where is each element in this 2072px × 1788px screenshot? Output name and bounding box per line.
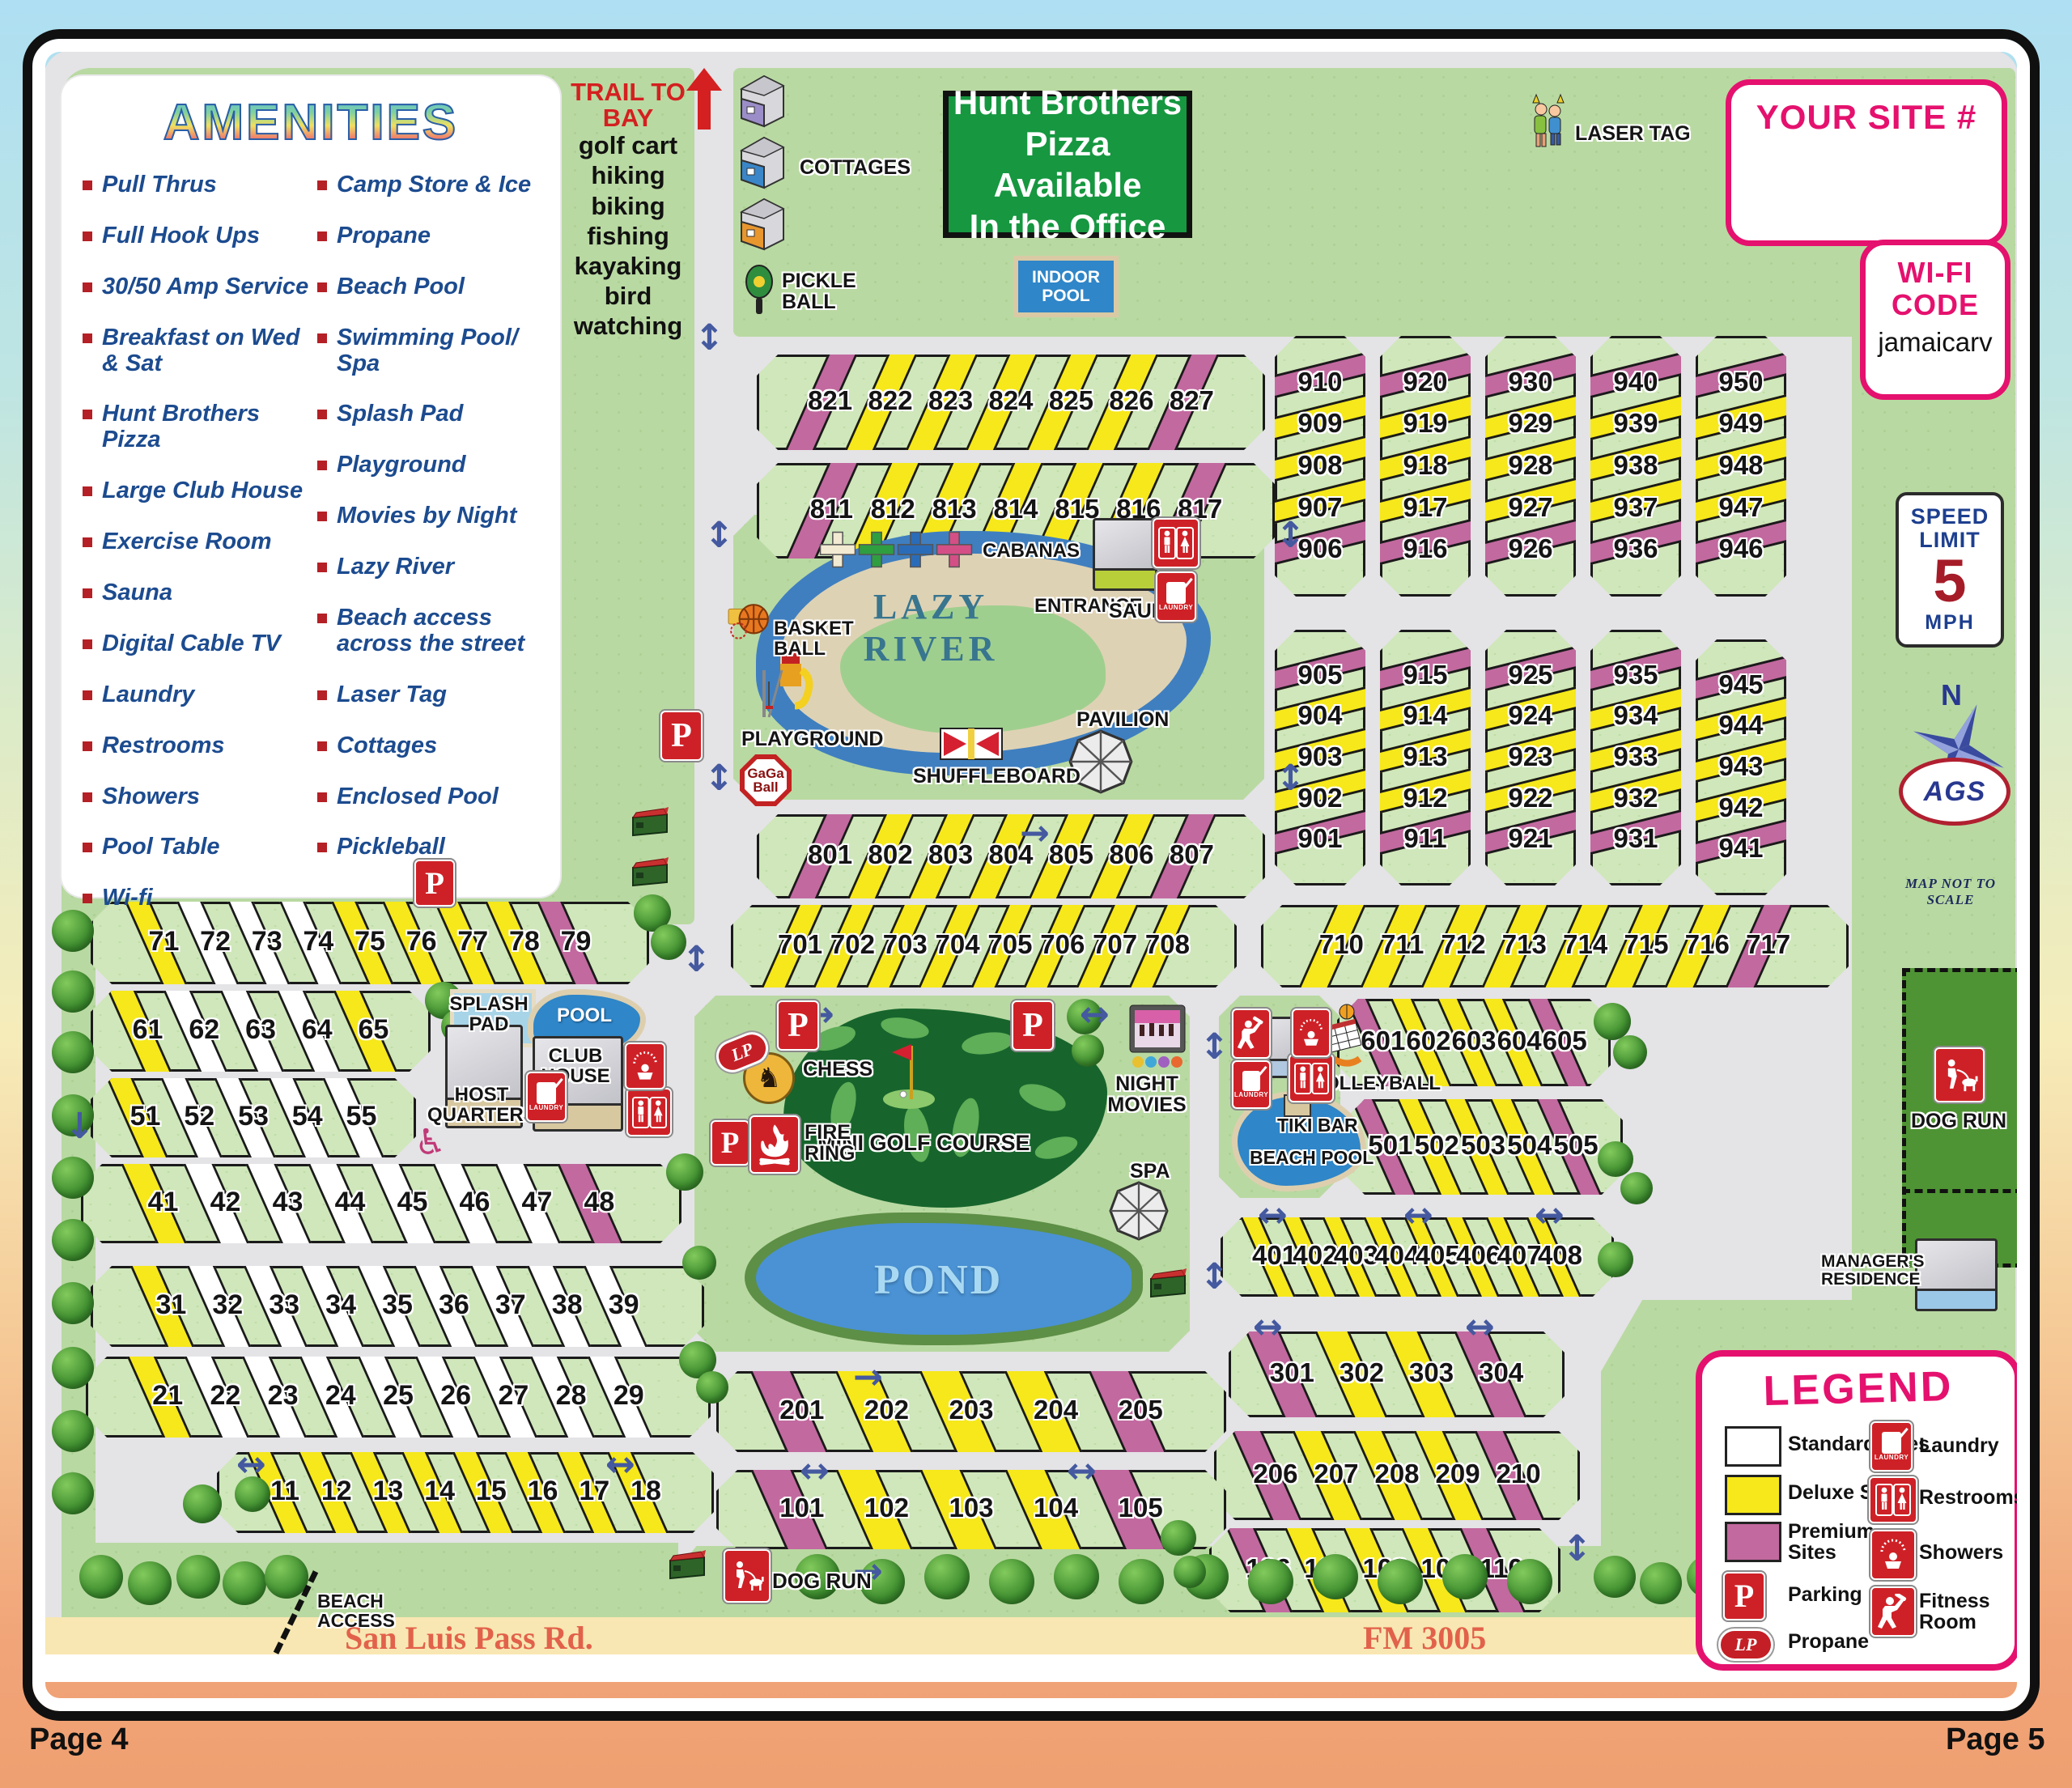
fire-ring-label: FIRE RING bbox=[805, 1122, 856, 1165]
col-935: 935934933932931 bbox=[1590, 630, 1681, 886]
legend-box: LEGEND Standard Sites Deluxe Sites Premi… bbox=[1696, 1350, 2021, 1671]
amenity-item: Cottages bbox=[317, 733, 552, 759]
map-not-to-scale-label: MAP NOT TO SCALE bbox=[1886, 876, 2015, 908]
legend-title: LEGEND bbox=[1701, 1361, 2015, 1417]
dog-sign-icon bbox=[724, 1549, 771, 1603]
amenity-item: Restrooms bbox=[83, 733, 317, 759]
chess-label: CHESS bbox=[803, 1059, 873, 1080]
site-number-825: 825 bbox=[1040, 385, 1102, 416]
pavilion-label: PAVILION bbox=[1076, 709, 1169, 730]
tree-icon bbox=[1378, 1559, 1423, 1604]
site-number-712: 712 bbox=[1433, 929, 1494, 960]
site-number-801: 801 bbox=[800, 839, 861, 870]
legend-propane-icon: LP bbox=[1718, 1629, 1773, 1661]
tree-icon bbox=[1119, 1559, 1164, 1604]
traffic-arrow: ↔ bbox=[605, 1444, 635, 1485]
site-number-913: 913 bbox=[1395, 741, 1456, 772]
site-number-207: 207 bbox=[1306, 1459, 1367, 1489]
trail-activity: golf cart bbox=[565, 130, 691, 160]
restroom-sign-icon bbox=[1289, 1054, 1334, 1102]
row-700s-a: 701702703704705706707708 bbox=[731, 905, 1237, 987]
indoor-pool-text: INDOOR POOL bbox=[1032, 268, 1100, 305]
dumpster-icon bbox=[1149, 1268, 1187, 1300]
site-number-914: 914 bbox=[1395, 700, 1456, 731]
site-number-42: 42 bbox=[195, 1187, 257, 1218]
traffic-arrow: ↕ bbox=[704, 758, 734, 799]
amenity-item: Camp Store & Ice bbox=[317, 172, 552, 198]
site-number-201: 201 bbox=[771, 1395, 833, 1425]
tree-icon bbox=[1507, 1559, 1552, 1604]
site-number-301: 301 bbox=[1261, 1357, 1323, 1388]
golf-flag-icon bbox=[881, 1038, 937, 1111]
site-number-942: 942 bbox=[1710, 792, 1772, 823]
legend-restrooms-icon bbox=[1869, 1476, 1917, 1523]
traffic-arrow: ↕ bbox=[704, 515, 734, 556]
speed-limit-sign: SPEED LIMIT 5 MPH bbox=[1896, 492, 2004, 648]
amenity-item: Breakfast on Wed & Sat bbox=[83, 325, 317, 377]
amenity-item: Enclosed Pool bbox=[317, 784, 552, 810]
cabana-icon bbox=[897, 531, 934, 572]
legend-fitness-icon bbox=[1870, 1586, 1916, 1637]
wifi-code-title: WI-FI CODE bbox=[1866, 257, 2005, 321]
tree-icon bbox=[1594, 1003, 1631, 1040]
fitness-sign-icon bbox=[1232, 1009, 1271, 1059]
legend-parking-icon: P bbox=[1723, 1572, 1765, 1620]
speed-limit-text: SPEED LIMIT bbox=[1911, 505, 1989, 551]
site-number-28: 28 bbox=[541, 1380, 602, 1412]
site-number-23: 23 bbox=[253, 1380, 314, 1412]
traffic-arrow: ↔ bbox=[1067, 1450, 1097, 1492]
amenity-item: Wi-fi bbox=[83, 886, 317, 911]
tree-icon bbox=[52, 1031, 94, 1073]
sauna-building bbox=[1093, 518, 1157, 591]
cabana-icon bbox=[819, 531, 856, 572]
cabanas-label: CABANAS bbox=[983, 541, 1080, 561]
row-500s: 501502503504505 bbox=[1344, 1099, 1623, 1195]
tree-icon bbox=[682, 1246, 716, 1280]
traffic-arrow: ↕ bbox=[1199, 1256, 1229, 1297]
site-number-47: 47 bbox=[506, 1187, 567, 1218]
legend-showers-icon bbox=[1870, 1530, 1916, 1580]
managers-residence-building bbox=[1915, 1238, 1998, 1311]
site-number-64: 64 bbox=[287, 1014, 348, 1046]
site-number-912: 912 bbox=[1395, 783, 1456, 813]
amenities-card: AMENITIES Pull ThrusFull Hook Ups30/50 A… bbox=[62, 76, 560, 897]
site-number-103: 103 bbox=[940, 1493, 1002, 1523]
site-number-716: 716 bbox=[1676, 929, 1738, 960]
amenity-item: Exercise Room bbox=[83, 529, 317, 555]
row-200s-a: 201202203204205 bbox=[716, 1371, 1226, 1452]
amenity-item: Digital Cable TV bbox=[83, 631, 317, 657]
shower-sign-icon bbox=[625, 1043, 665, 1089]
site-number-55: 55 bbox=[330, 1101, 392, 1132]
tree-icon bbox=[52, 1410, 94, 1452]
tree-icon bbox=[1640, 1562, 1682, 1604]
site-number-927: 927 bbox=[1500, 492, 1561, 523]
laser-tag-icon bbox=[1525, 91, 1572, 151]
legend-premium-label: Premium Sites bbox=[1788, 1522, 1875, 1563]
traffic-arrow: ↕ bbox=[694, 317, 724, 359]
shower-sign-icon bbox=[1292, 1009, 1331, 1057]
site-number-909: 909 bbox=[1289, 408, 1351, 439]
legend-propane-label: Propane bbox=[1788, 1632, 1869, 1653]
san-luis-pass-rd-label: San Luis Pass Rd. bbox=[345, 1619, 593, 1657]
shuffleboard-icon bbox=[939, 727, 1004, 761]
tiki-bar-label: TIKI BAR bbox=[1277, 1115, 1358, 1135]
traffic-arrow: ↕ bbox=[1276, 758, 1306, 799]
row-800s: 801802803804805806807 bbox=[757, 814, 1265, 898]
pond-label: POND bbox=[874, 1256, 1003, 1304]
site-number-202: 202 bbox=[856, 1395, 917, 1425]
site-number-918: 918 bbox=[1395, 450, 1456, 481]
legend-fitness-label: Fitness Room bbox=[1919, 1591, 1990, 1633]
tree-icon bbox=[666, 1153, 703, 1191]
shuffleboard-label: SHUFFLEBOARD bbox=[913, 766, 1081, 787]
compass-north-label: N bbox=[1941, 678, 1962, 712]
traffic-arrow: ↓ bbox=[65, 1106, 95, 1147]
site-number-935: 935 bbox=[1605, 660, 1667, 690]
legend-premium-swatch bbox=[1725, 1522, 1781, 1562]
row-20s: 212223242526272829 bbox=[86, 1357, 711, 1438]
amenity-item: Beach Pool bbox=[317, 274, 552, 300]
amenity-item: Swimming Pool/ Spa bbox=[317, 325, 552, 377]
site-number-921: 921 bbox=[1500, 823, 1561, 854]
site-number-944: 944 bbox=[1710, 710, 1772, 741]
site-number-904: 904 bbox=[1289, 700, 1351, 731]
tree-icon bbox=[52, 1157, 94, 1199]
site-number-203: 203 bbox=[940, 1395, 1002, 1425]
site-number-937: 937 bbox=[1605, 492, 1667, 523]
site-number-79: 79 bbox=[546, 926, 607, 958]
amenities-column-2: Camp Store & IcePropaneBeach PoolSwimmin… bbox=[317, 172, 552, 911]
site-number-209: 209 bbox=[1427, 1459, 1488, 1489]
site-number-61: 61 bbox=[117, 1014, 179, 1046]
tree-icon bbox=[52, 1219, 94, 1261]
site-number-922: 922 bbox=[1500, 783, 1561, 813]
cottage-icon bbox=[737, 197, 787, 251]
site-number-814: 814 bbox=[985, 494, 1047, 525]
dumpster-icon bbox=[631, 806, 669, 839]
site-number-824: 824 bbox=[980, 385, 1042, 416]
wifi-code-value: jamaicarv bbox=[1866, 327, 2005, 358]
tree-icon bbox=[1594, 1556, 1636, 1598]
legend-laundry-icon: LAUNDRY bbox=[1870, 1421, 1913, 1472]
dog-run-divider bbox=[1902, 1189, 2023, 1193]
amenities-title: AMENITIES bbox=[62, 94, 560, 151]
parking-sign-icon: P bbox=[1012, 1000, 1054, 1051]
traffic-arrow: ↔ bbox=[1258, 1195, 1288, 1236]
site-number-910: 910 bbox=[1289, 367, 1351, 397]
site-number-925: 925 bbox=[1500, 660, 1561, 690]
site-number-39: 39 bbox=[593, 1289, 655, 1321]
site-number-46: 46 bbox=[444, 1187, 505, 1218]
site-number-710: 710 bbox=[1310, 929, 1372, 960]
site-number-933: 933 bbox=[1605, 741, 1667, 772]
site-number-714: 714 bbox=[1555, 929, 1616, 960]
restroom-sign-icon bbox=[1153, 518, 1199, 568]
parking-sign-icon: P bbox=[660, 711, 703, 761]
site-number-36: 36 bbox=[423, 1289, 485, 1321]
site-number-31: 31 bbox=[140, 1289, 202, 1321]
traffic-arrow: ↔ bbox=[236, 1444, 266, 1485]
site-number-101: 101 bbox=[771, 1493, 833, 1523]
pickleball-label: PICKLE BALL bbox=[782, 270, 856, 313]
amenity-item: Playground bbox=[317, 452, 552, 478]
amenity-item: Laser Tag bbox=[317, 682, 552, 708]
fire-sign-icon bbox=[749, 1115, 800, 1174]
parking-sign-icon: P bbox=[711, 1120, 749, 1166]
wifi-code-box: WI-FI CODE jamaicarv bbox=[1860, 240, 2010, 400]
row-70s: 717273747576777879 bbox=[91, 902, 649, 984]
splash-pad-label: SPLASH PAD bbox=[440, 994, 537, 1034]
your-site-box: YOUR SITE # bbox=[1726, 79, 2007, 246]
site-number-25: 25 bbox=[367, 1380, 429, 1412]
tree-icon bbox=[52, 910, 94, 952]
amenity-item: Beach access across the street bbox=[317, 605, 552, 657]
site-number-915: 915 bbox=[1395, 660, 1456, 690]
amenity-item: Sauna bbox=[83, 580, 317, 606]
cabana-icon bbox=[936, 531, 973, 572]
tree-icon bbox=[989, 1559, 1034, 1604]
site-number-934: 934 bbox=[1605, 700, 1667, 731]
site-number-923: 923 bbox=[1500, 741, 1561, 772]
col-940: 940939938937936 bbox=[1590, 336, 1681, 597]
site-number-905: 905 bbox=[1289, 660, 1351, 690]
legend-parking-label: Parking bbox=[1788, 1585, 1862, 1606]
site-number-948: 948 bbox=[1710, 450, 1772, 481]
dog-sign-icon bbox=[1934, 1047, 1985, 1102]
trail-activity: biking bbox=[565, 191, 691, 221]
site-number-27: 27 bbox=[482, 1380, 544, 1412]
lazy-river-label: LAZY RIVER bbox=[842, 586, 1020, 670]
site-number-930: 930 bbox=[1500, 367, 1561, 397]
site-number-713: 713 bbox=[1493, 929, 1555, 960]
site-number-38: 38 bbox=[537, 1289, 598, 1321]
amenity-item: Full Hook Ups bbox=[83, 223, 317, 249]
tree-icon bbox=[1598, 1242, 1633, 1277]
amenity-item: Pull Thrus bbox=[83, 172, 317, 198]
col-920: 920919918917916 bbox=[1380, 336, 1471, 597]
legend-deluxe-swatch bbox=[1725, 1475, 1781, 1515]
wheelchair-icon: ♿ bbox=[414, 1122, 446, 1163]
site-number-41: 41 bbox=[133, 1187, 194, 1218]
amenity-item: Large Club House bbox=[83, 478, 317, 504]
amenity-item: Lazy River bbox=[317, 554, 552, 580]
site-number-605: 605 bbox=[1534, 1026, 1595, 1056]
site-number-65: 65 bbox=[342, 1014, 404, 1046]
site-number-920: 920 bbox=[1395, 367, 1456, 397]
amenity-item: Laundry bbox=[83, 682, 317, 708]
traffic-arrow: → bbox=[1020, 813, 1050, 854]
site-number-303: 303 bbox=[1401, 1357, 1463, 1388]
site-number-22: 22 bbox=[194, 1380, 256, 1412]
amenity-item: Splash Pad bbox=[317, 401, 552, 427]
site-number-947: 947 bbox=[1710, 492, 1772, 523]
site-number-26: 26 bbox=[425, 1380, 486, 1412]
traffic-arrow: ↕ bbox=[1199, 1026, 1229, 1068]
traffic-arrow: ↕ bbox=[681, 939, 711, 980]
row-50s: 5152535455 bbox=[91, 1078, 416, 1157]
site-number-32: 32 bbox=[197, 1289, 258, 1321]
parking-sign-icon: P bbox=[777, 1000, 819, 1051]
site-number-813: 813 bbox=[923, 494, 985, 525]
pool-label: POOL bbox=[557, 1005, 612, 1026]
site-number-717: 717 bbox=[1738, 929, 1799, 960]
block-left-edge bbox=[62, 923, 96, 1625]
site-number-908: 908 bbox=[1289, 450, 1351, 481]
laundry-sign-icon: LAUNDRY bbox=[1232, 1060, 1271, 1109]
playground-label: PLAYGROUND bbox=[741, 728, 884, 750]
site-number-104: 104 bbox=[1025, 1493, 1087, 1523]
cottage-icon bbox=[737, 74, 787, 128]
site-number-823: 823 bbox=[920, 385, 982, 416]
basketball-icon bbox=[727, 601, 772, 646]
col-930: 930929928927926 bbox=[1485, 336, 1576, 597]
night-movies-label: NIGHT MOVIES bbox=[1094, 1073, 1199, 1116]
col-950: 950949948947946 bbox=[1696, 336, 1786, 597]
tree-icon bbox=[1613, 1035, 1647, 1069]
campground-map-page: { "amenities":{ "title":"AMENITIES", "co… bbox=[0, 0, 2072, 1788]
managers-residence-label: MANAGER'S RESIDENCE bbox=[1821, 1253, 1918, 1289]
tree-icon bbox=[52, 970, 94, 1013]
trail-to-bay-title: TRAIL TO BAY bbox=[565, 79, 691, 130]
host-quarters-label: HOST QUARTERS bbox=[427, 1085, 536, 1125]
tree-icon bbox=[1248, 1559, 1293, 1604]
site-number-940: 940 bbox=[1605, 367, 1667, 397]
gaga-ball-label: GaGa Ball bbox=[747, 767, 783, 794]
site-number-941: 941 bbox=[1710, 833, 1772, 864]
site-number-43: 43 bbox=[257, 1187, 319, 1218]
trail-activities: golf carthikingbikingfishingkayakingbird… bbox=[565, 130, 691, 341]
restroom-sign-icon bbox=[626, 1088, 672, 1136]
amenity-item: 30/50 Amp Service bbox=[83, 274, 317, 300]
amenity-item: Showers bbox=[83, 784, 317, 810]
site-number-53: 53 bbox=[223, 1101, 284, 1132]
tree-icon bbox=[1174, 1556, 1206, 1588]
site-number-206: 206 bbox=[1245, 1459, 1306, 1489]
site-number-45: 45 bbox=[381, 1187, 443, 1218]
site-number-102: 102 bbox=[856, 1493, 917, 1523]
site-number-105: 105 bbox=[1110, 1493, 1171, 1523]
legend-showers-label: Showers bbox=[1919, 1543, 2003, 1564]
tree-icon bbox=[176, 1555, 220, 1599]
traffic-arrow: ↔ bbox=[1080, 994, 1110, 1035]
site-number-24: 24 bbox=[310, 1380, 372, 1412]
legend-restrooms-label: Restrooms bbox=[1919, 1488, 2025, 1509]
site-number-33: 33 bbox=[253, 1289, 315, 1321]
fm-3005-label: FM 3005 bbox=[1363, 1619, 1486, 1657]
row-30s: 313233343536373839 bbox=[91, 1266, 704, 1347]
tree-icon bbox=[52, 1472, 94, 1514]
col-945: 945944943942941 bbox=[1696, 639, 1786, 895]
row-10s: 1112131415161718 bbox=[217, 1452, 714, 1533]
site-number-911: 911 bbox=[1395, 823, 1456, 854]
col-910: 910909908907906 bbox=[1275, 336, 1365, 597]
dumpster-icon bbox=[669, 1549, 706, 1582]
site-number-51: 51 bbox=[115, 1101, 176, 1132]
site-number-827: 827 bbox=[1161, 385, 1222, 416]
pickleball-paddle-icon bbox=[741, 264, 777, 316]
row-40s: 4142434445464748 bbox=[81, 1164, 681, 1243]
page-number-right: Page 5 bbox=[1946, 1722, 2045, 1757]
site-number-52: 52 bbox=[168, 1101, 230, 1132]
speed-limit-number: 5 bbox=[1933, 551, 1966, 611]
traffic-arrow: ↔ bbox=[1535, 1195, 1565, 1236]
site-number-822: 822 bbox=[860, 385, 921, 416]
tree-icon bbox=[79, 1555, 123, 1599]
dog-run-label-right: DOG RUN bbox=[1904, 1111, 2014, 1132]
amenity-item: Movies by Night bbox=[317, 503, 552, 529]
site-number-939: 939 bbox=[1605, 408, 1667, 439]
amenity-item: Hunt Brothers Pizza bbox=[83, 401, 317, 453]
site-number-304: 304 bbox=[1471, 1357, 1532, 1388]
site-number-917: 917 bbox=[1395, 492, 1456, 523]
legend-standard-swatch bbox=[1725, 1426, 1781, 1467]
amenity-item: Pool Table bbox=[83, 835, 317, 860]
row-100s-a: 101102103104105 bbox=[716, 1470, 1226, 1549]
speed-limit-unit: MPH bbox=[1925, 611, 1975, 635]
ags-text: AGS bbox=[1924, 776, 1986, 808]
row-200s-b: 206207208209210 bbox=[1214, 1431, 1580, 1520]
site-number-29: 29 bbox=[598, 1380, 660, 1412]
traffic-arrow: → bbox=[853, 1357, 883, 1398]
site-number-821: 821 bbox=[800, 385, 861, 416]
site-number-204: 204 bbox=[1025, 1395, 1087, 1425]
tree-icon bbox=[183, 1484, 222, 1523]
tree-icon bbox=[696, 1371, 728, 1404]
tree-icon bbox=[1054, 1554, 1099, 1599]
row-700s-b: 710711712713714715716717 bbox=[1261, 905, 1849, 987]
site-number-302: 302 bbox=[1331, 1357, 1392, 1388]
cottages-label: COTTAGES bbox=[800, 157, 911, 178]
beach-pool-label: BEACH POOL bbox=[1250, 1148, 1374, 1167]
laundry-sign-icon: LAUNDRY bbox=[1156, 571, 1196, 622]
site-number-929: 929 bbox=[1500, 408, 1561, 439]
site-number-44: 44 bbox=[320, 1187, 381, 1218]
page-number-left: Page 4 bbox=[29, 1722, 129, 1757]
parking-sign-icon: P bbox=[414, 860, 455, 907]
spa-icon bbox=[1101, 1180, 1177, 1242]
site-number-936: 936 bbox=[1605, 533, 1667, 564]
site-number-932: 932 bbox=[1605, 783, 1667, 813]
site-number-812: 812 bbox=[862, 494, 923, 525]
site-number-21: 21 bbox=[137, 1380, 198, 1412]
row-60s: 6162636465 bbox=[91, 991, 431, 1072]
site-number-803: 803 bbox=[920, 839, 982, 870]
site-number-946: 946 bbox=[1710, 533, 1772, 564]
site-number-802: 802 bbox=[860, 839, 921, 870]
site-number-37: 37 bbox=[480, 1289, 541, 1321]
tree-icon bbox=[1598, 1141, 1633, 1177]
tree-icon bbox=[1072, 1034, 1104, 1067]
site-number-943: 943 bbox=[1710, 751, 1772, 782]
site-number-949: 949 bbox=[1710, 408, 1772, 439]
trail-activity: kayaking bbox=[565, 251, 691, 281]
traffic-arrow: ↔ bbox=[1465, 1306, 1495, 1348]
row-820s: 821822823824825826827 bbox=[757, 355, 1265, 450]
tree-icon bbox=[1620, 1172, 1653, 1204]
trail-activity: hiking bbox=[565, 160, 691, 190]
site-number-708: 708 bbox=[1136, 929, 1198, 960]
tree-icon bbox=[1442, 1554, 1488, 1599]
cabana-icon bbox=[858, 531, 895, 572]
ags-logo: AGS bbox=[1899, 758, 2010, 826]
site-number-715: 715 bbox=[1616, 929, 1677, 960]
site-number-928: 928 bbox=[1500, 450, 1561, 481]
site-number-35: 35 bbox=[367, 1289, 428, 1321]
tree-icon bbox=[223, 1561, 266, 1605]
laundry-sign-icon: LAUNDRY bbox=[526, 1072, 567, 1122]
